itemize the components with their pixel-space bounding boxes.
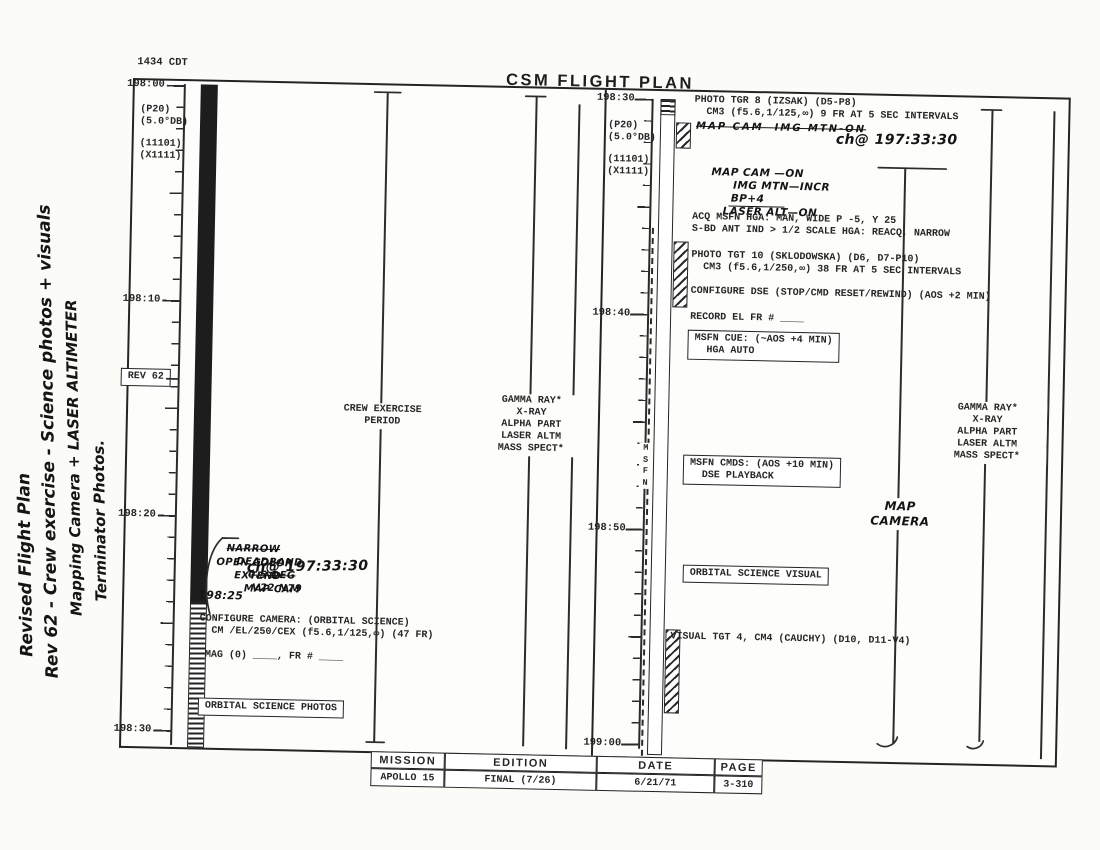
flight-plan-sheet: 1434 CDT CSM FLIGHT PLAN 198:00 198:10 1… (119, 78, 1071, 767)
hand-change-time-right: ch@ 197:33:30 (836, 134, 958, 147)
date-value: 6/21/71 (596, 773, 714, 793)
hand-change-time-left: ch@ 197:33:30 (247, 560, 369, 575)
configure-camera-note: CONFIGURE CAMERA: (ORBITAL SCIENCE) CM /… (199, 614, 434, 643)
left-attitude-bar (190, 84, 218, 603)
edition-value: FINAL (7/26) (444, 770, 596, 791)
right-time-199-00: 199:00 (577, 736, 621, 749)
hand-map-cam-on: MAP CAM —ON (711, 166, 804, 180)
panel-divider (591, 90, 607, 756)
right-maneuver-cap (660, 99, 675, 115)
right-time-198-30: 198:30 (591, 92, 635, 105)
mission-value: APOLLO 15 (370, 768, 444, 788)
left-experiments-label: GAMMA RAY* X-RAY ALPHA PART LASER ALTM M… (471, 393, 591, 457)
left-ruler-10min-ticks (153, 85, 184, 733)
mission-label: MISSION (371, 751, 445, 770)
photo-tgr8-activity-bar (676, 122, 692, 148)
page-title: CSM FLIGHT PLAN (495, 71, 705, 94)
record-el-blank: RECORD EL FR # ____ (690, 312, 804, 326)
hand-img-mtn-incr: IMG MTN—INCR (733, 180, 830, 194)
configure-dse-note: CONFIGURE DSE (STOP/CMD RESET/REWIND) (A… (691, 286, 991, 304)
scan-time-note: 1434 CDT (137, 56, 188, 69)
margin-annotation: Revised Flight Plan Rev 62 - Crew exerci… (6, 113, 116, 695)
left-attitude-note-b: (11101) (X1111) (139, 138, 182, 163)
right-time-198-50: 198:50 (582, 521, 626, 534)
photo-tgt10-activity-bar (672, 241, 688, 307)
hand-198-25: 198:25 (198, 588, 243, 602)
crew-exercise-label: CREW EXERCISE PERIOD (323, 402, 443, 430)
mag-frame-blanks: MAG (0) ____, FR # ____ (205, 650, 343, 665)
left-time-198-00: 198:00 (121, 78, 165, 91)
scanned-flight-plan-page: { "page": { "scan_time_note": "1434 CDT"… (0, 0, 1100, 850)
page-value: 3-310 (714, 775, 762, 794)
page-label: PAGE (715, 758, 763, 776)
left-attitude-note-a: (P20) (5.0°DB) (140, 104, 189, 129)
left-time-198-20: 198:20 (112, 508, 156, 521)
left-time-198-10: 198:10 (116, 293, 160, 306)
msfn-cue-box: MSFN CUE: (~AOS +4 MIN) HGA AUTO (687, 330, 840, 363)
rev-62-badge: REV 62 (121, 368, 171, 387)
footer-table: MISSION EDITION DATE PAGE APOLLO 15 FINA… (370, 751, 763, 794)
right-attitude-note-b: (11101) (X1111) (607, 154, 650, 179)
right-attitude-note-a: (P20) (5.0°DB) (608, 120, 657, 145)
msfn-vertical-label: M S F N (639, 443, 653, 489)
map-camera-hand-label: MAP CAMERA (852, 497, 949, 531)
orbital-science-photos-box: ORBITAL SCIENCE PHOTOS (198, 697, 344, 718)
photo-tgt10-note: PHOTO TGT 10 (SKLODOWSKA) (D6, D7-P10) C… (691, 250, 962, 280)
right-experiments-label: GAMMA RAY* X-RAY ALPHA PART LASER ALTM M… (927, 401, 1047, 465)
right-time-198-40: 198:40 (586, 307, 630, 320)
orbital-science-visual-box: ORBITAL SCIENCE VISUAL (683, 565, 829, 586)
visual-tgt4-note: VISUAL TGT 4, CM4 (CAUCHY) (D10, D11-V4) (670, 631, 910, 648)
msfn-cmds-box: MSFN CMDS: (AOS +10 MIN) DSE PLAYBACK (683, 455, 842, 488)
hand-map-cam: MAP CAM (244, 583, 301, 595)
left-time-198-30: 198:30 (107, 723, 151, 736)
acq-msfn-note: ACQ MSFN HGA: MAN, WIDE P -5, Y 25 S-BD … (692, 212, 950, 241)
